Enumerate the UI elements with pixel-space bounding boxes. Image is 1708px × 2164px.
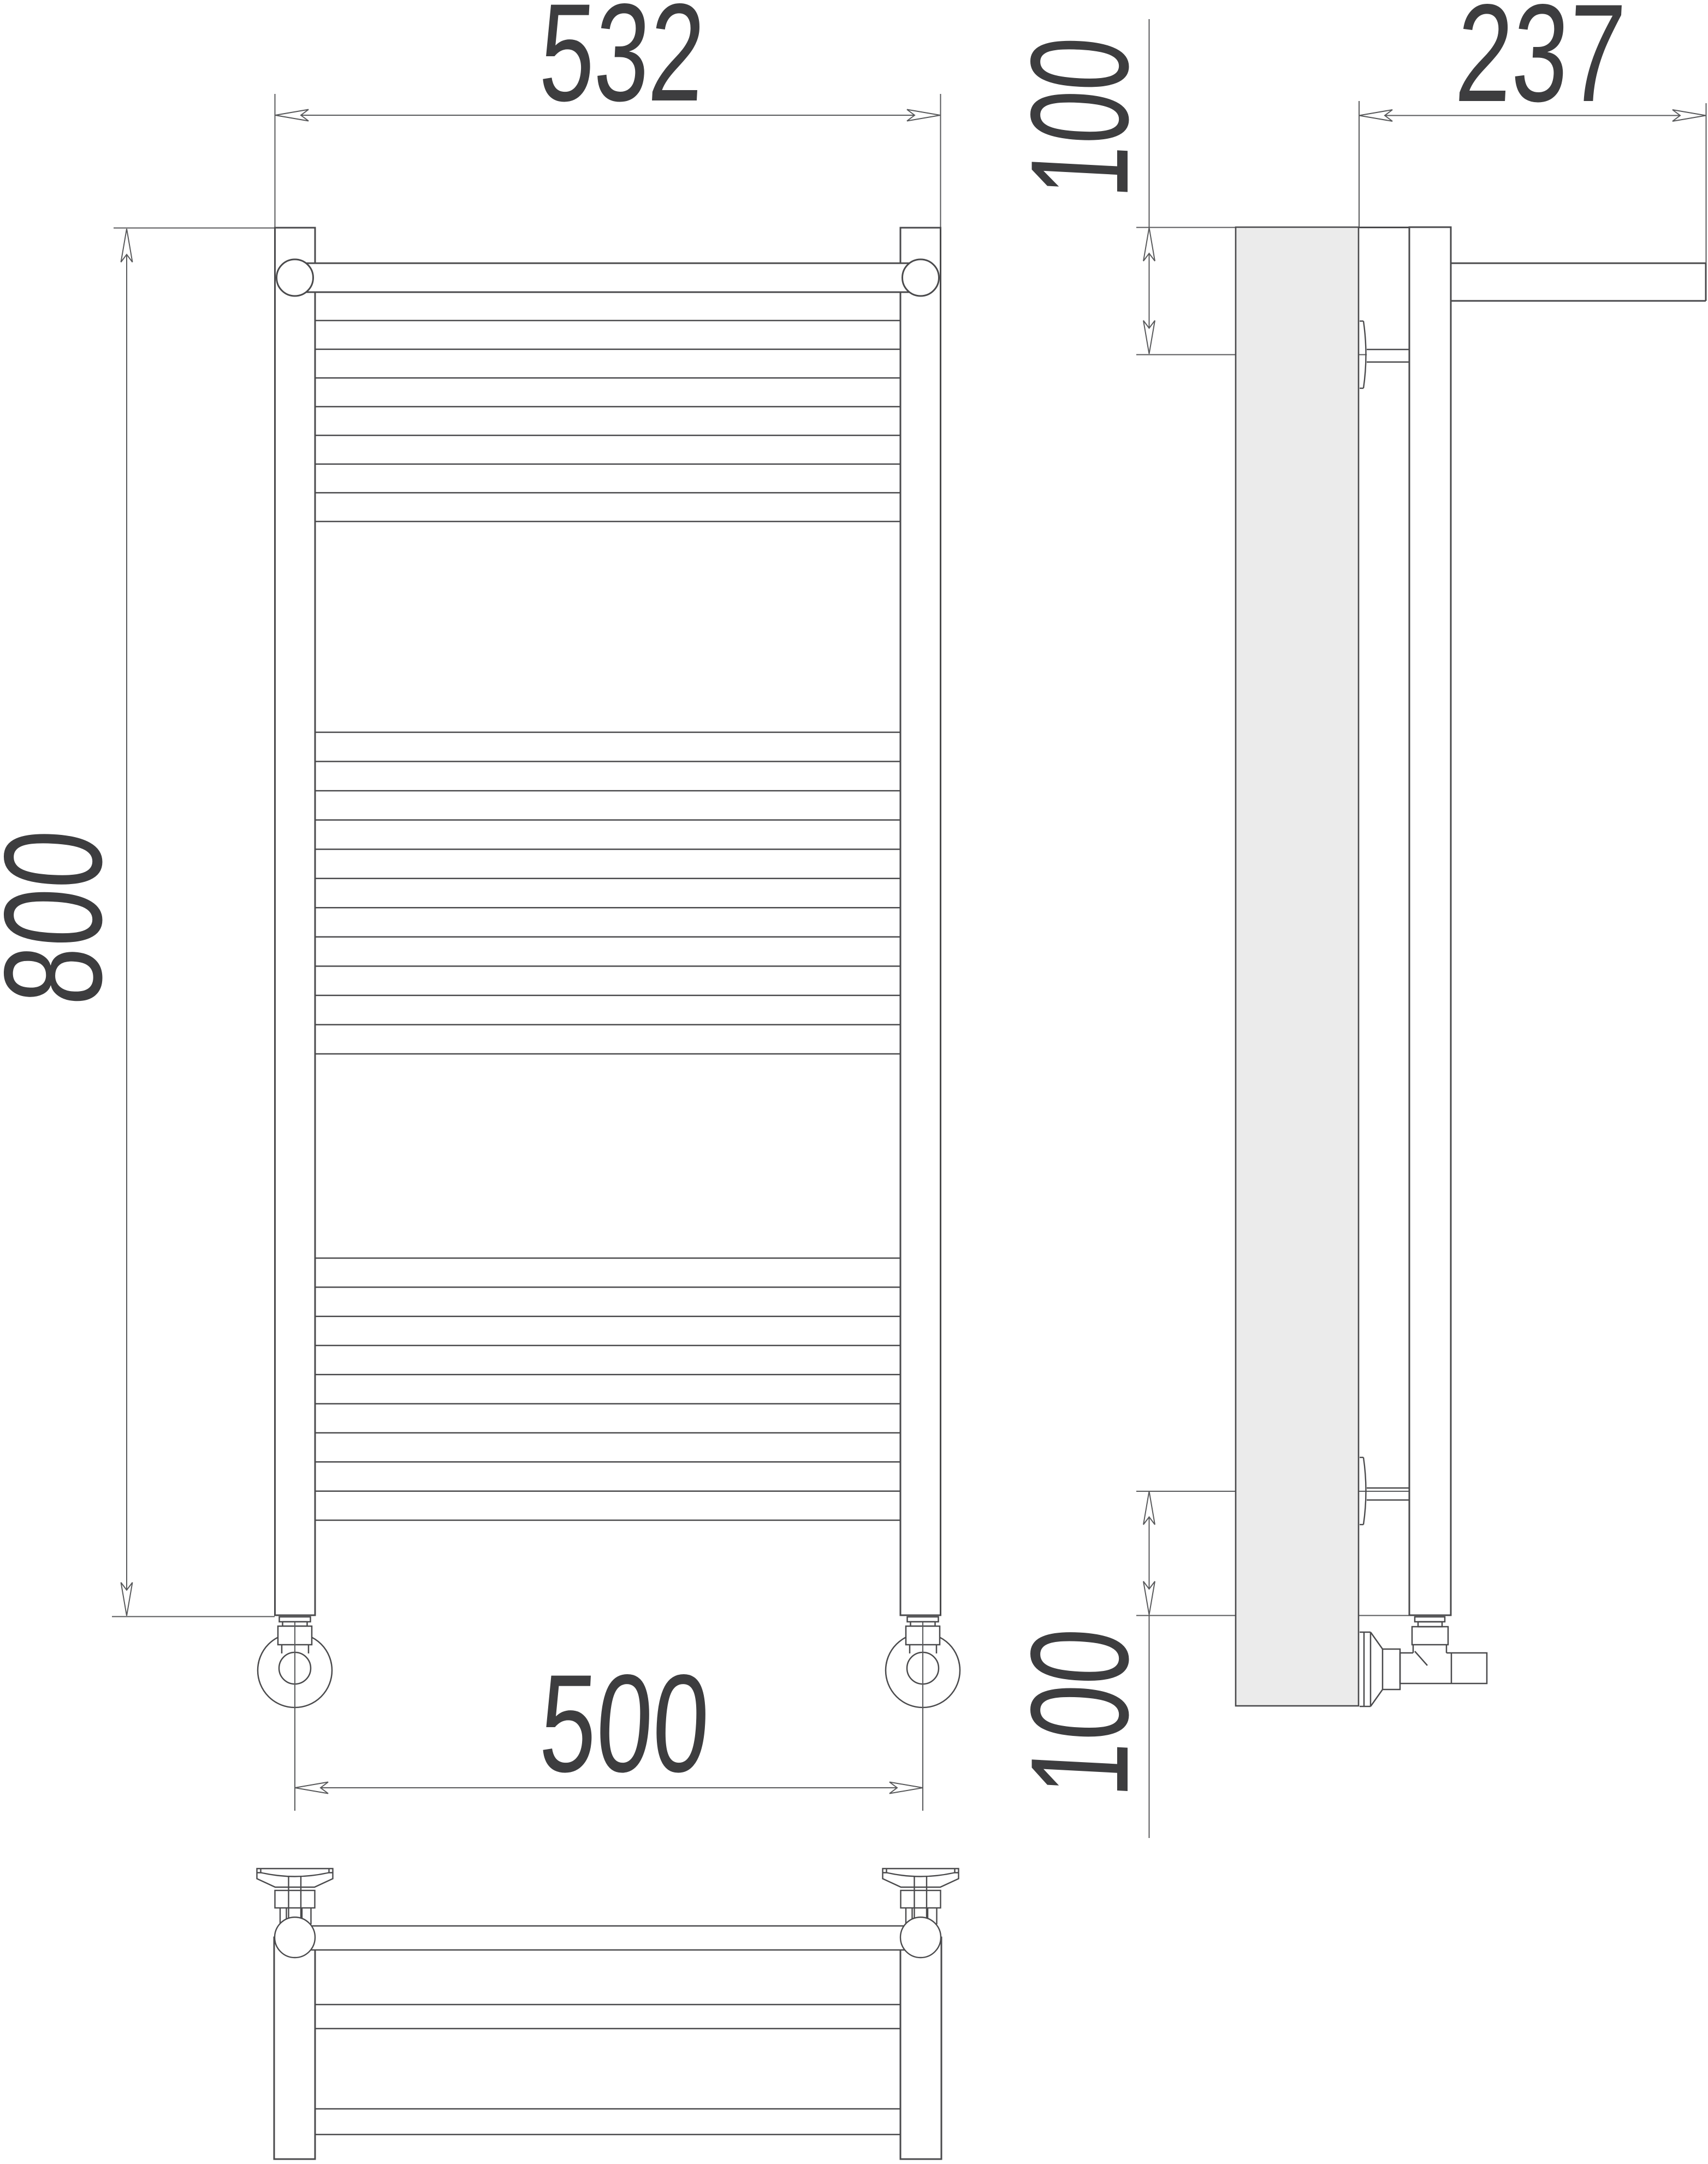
svg-text:100: 100 xyxy=(1002,33,1158,201)
svg-text:100: 100 xyxy=(1002,1625,1158,1800)
svg-text:800: 800 xyxy=(0,826,131,1009)
svg-text:237: 237 xyxy=(1452,0,1628,131)
svg-text:500: 500 xyxy=(536,1646,713,1801)
svg-text:532: 532 xyxy=(536,0,708,131)
